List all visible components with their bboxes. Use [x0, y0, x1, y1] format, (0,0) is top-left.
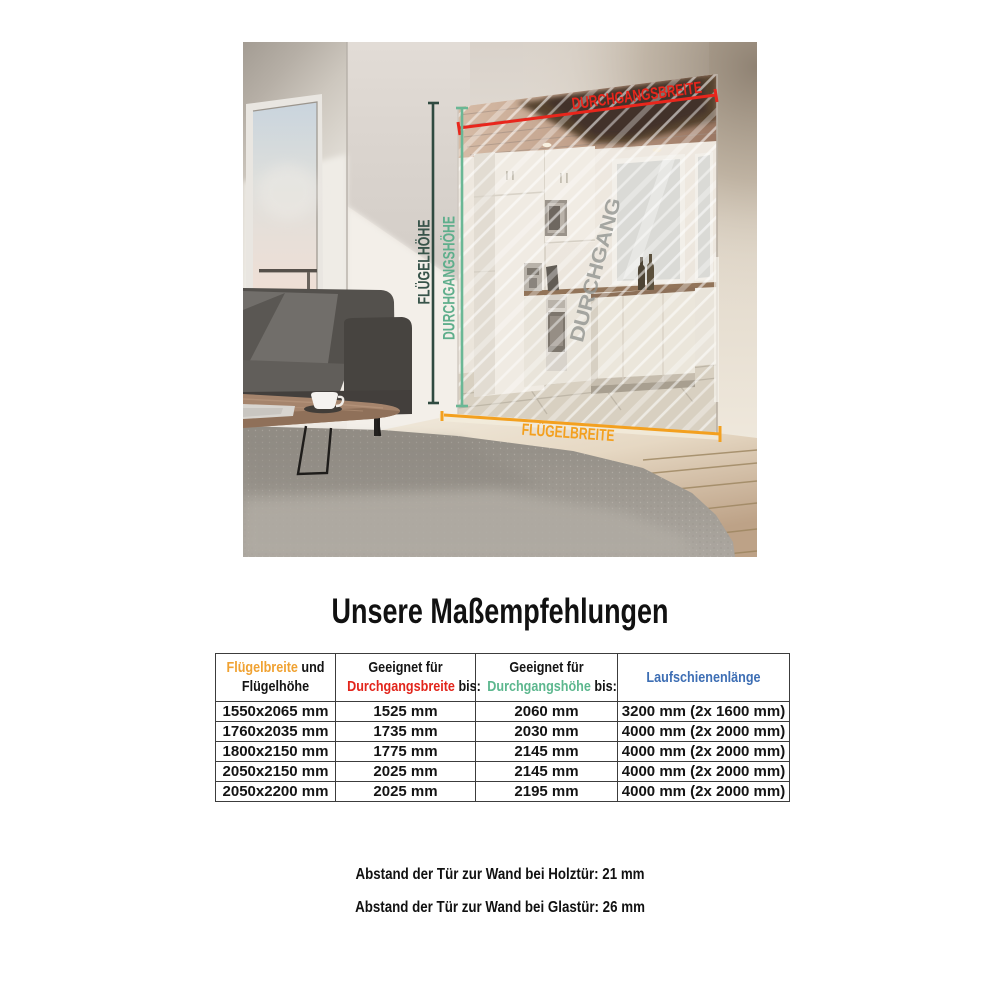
svg-text:DURCHGANGSHÖHE: DURCHGANGSHÖHE [440, 216, 459, 340]
svg-text:FLÜGELHÖHE: FLÜGELHÖHE [415, 220, 434, 305]
